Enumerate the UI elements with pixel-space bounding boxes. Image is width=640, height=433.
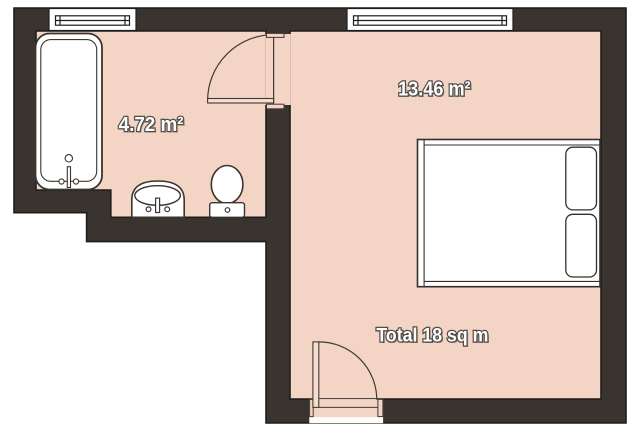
svg-text:4.72 m²: 4.72 m² bbox=[119, 114, 184, 136]
svg-text:13.46 m²: 13.46 m² bbox=[398, 79, 471, 101]
svg-text:Total 18 sq m: Total 18 sq m bbox=[376, 325, 488, 346]
